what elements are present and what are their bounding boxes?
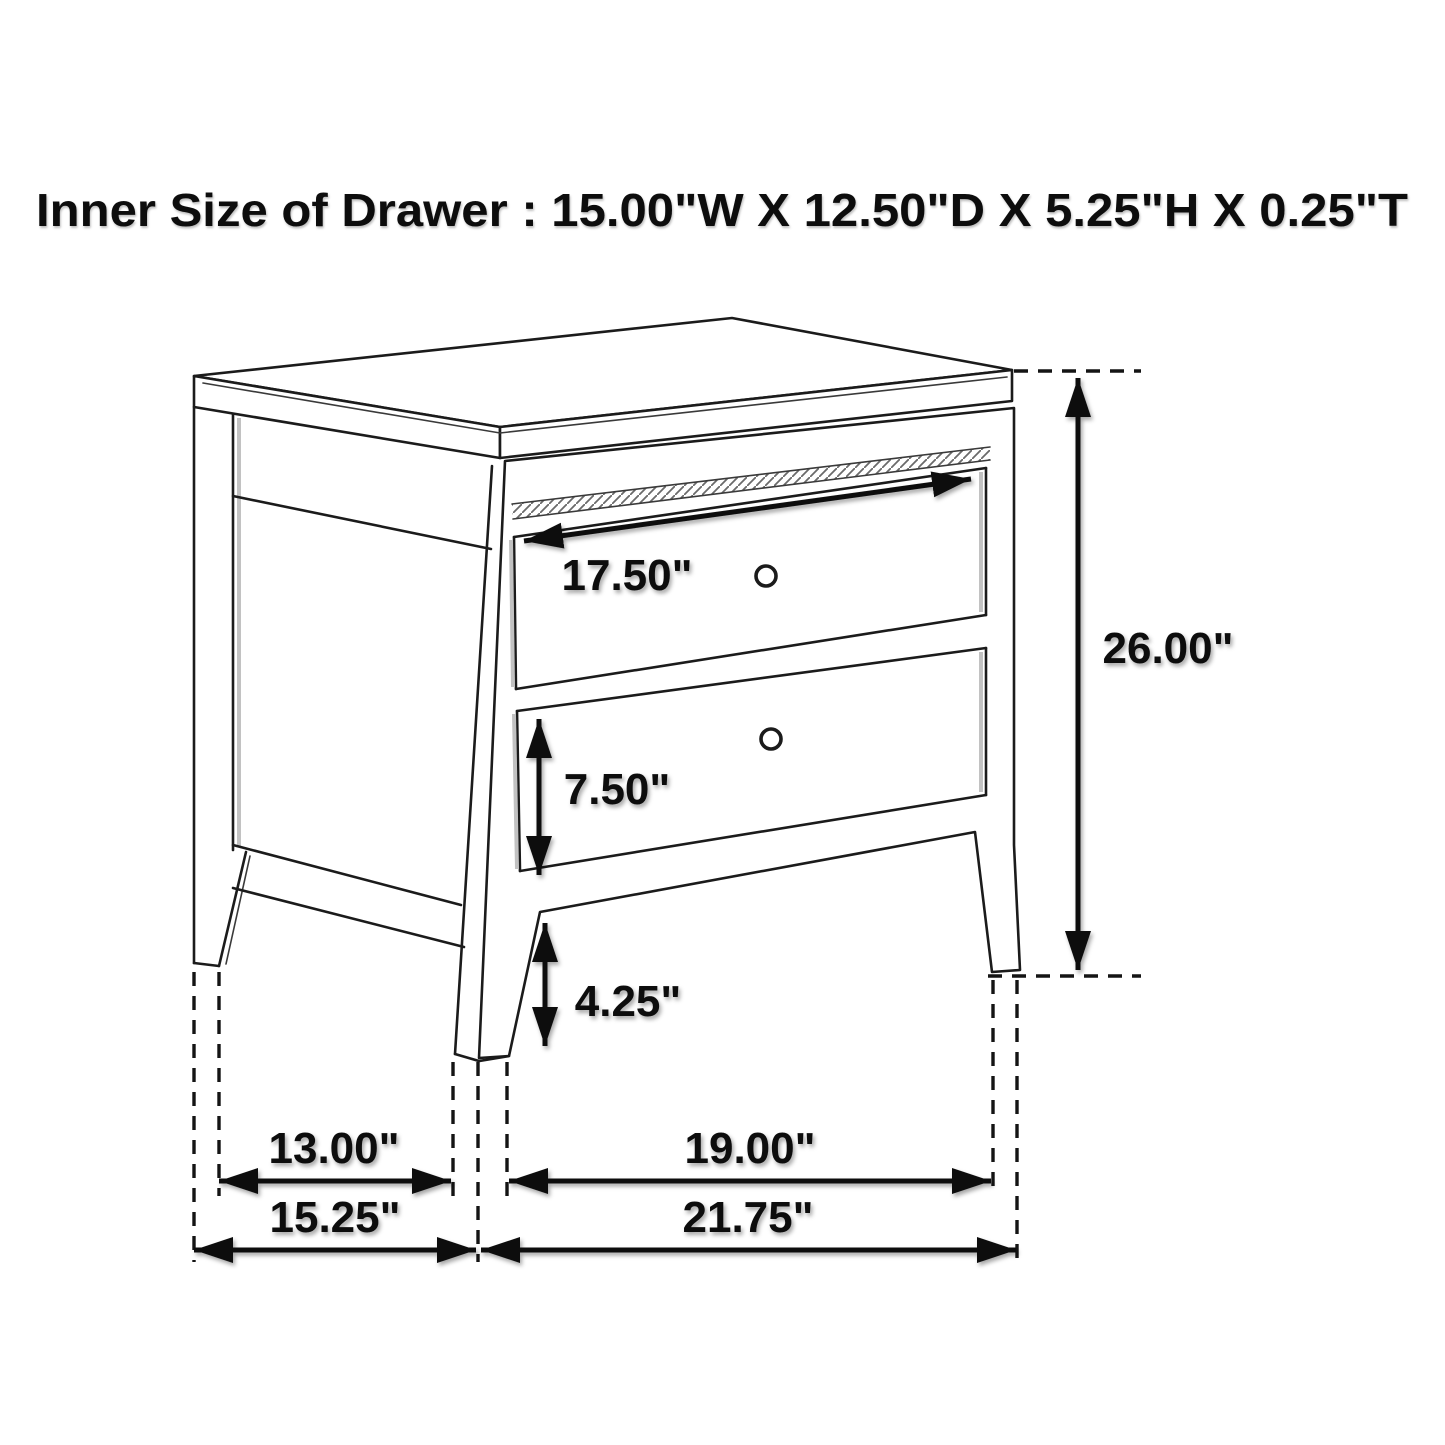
diagram-canvas: Inner Size of Drawer : 15.00"W X 12.50"D… <box>0 0 1445 1445</box>
nightstand-drawing <box>194 318 1020 1061</box>
bottom-drawer-knob <box>761 729 781 749</box>
dim-overall-width-label: 21.75" <box>683 1193 814 1242</box>
dim-bottom-drawer-height-label: 7.50" <box>564 765 671 814</box>
dim-front-leg-spacing-label: 19.00" <box>685 1124 816 1173</box>
dim-top-drawer-width-label: 17.50" <box>562 551 693 600</box>
page-title: Inner Size of Drawer : 15.00"W X 12.50"D… <box>36 184 1408 236</box>
dim-side-leg-spacing-label: 13.00" <box>269 1124 400 1173</box>
dim-overall-height-label: 26.00" <box>1103 624 1234 673</box>
dim-bottom-clearance-label: 4.25" <box>575 977 682 1026</box>
top-drawer-knob <box>756 566 776 586</box>
dim-overall-depth-label: 15.25" <box>270 1193 401 1242</box>
top-drawer-left-shading <box>511 540 513 687</box>
